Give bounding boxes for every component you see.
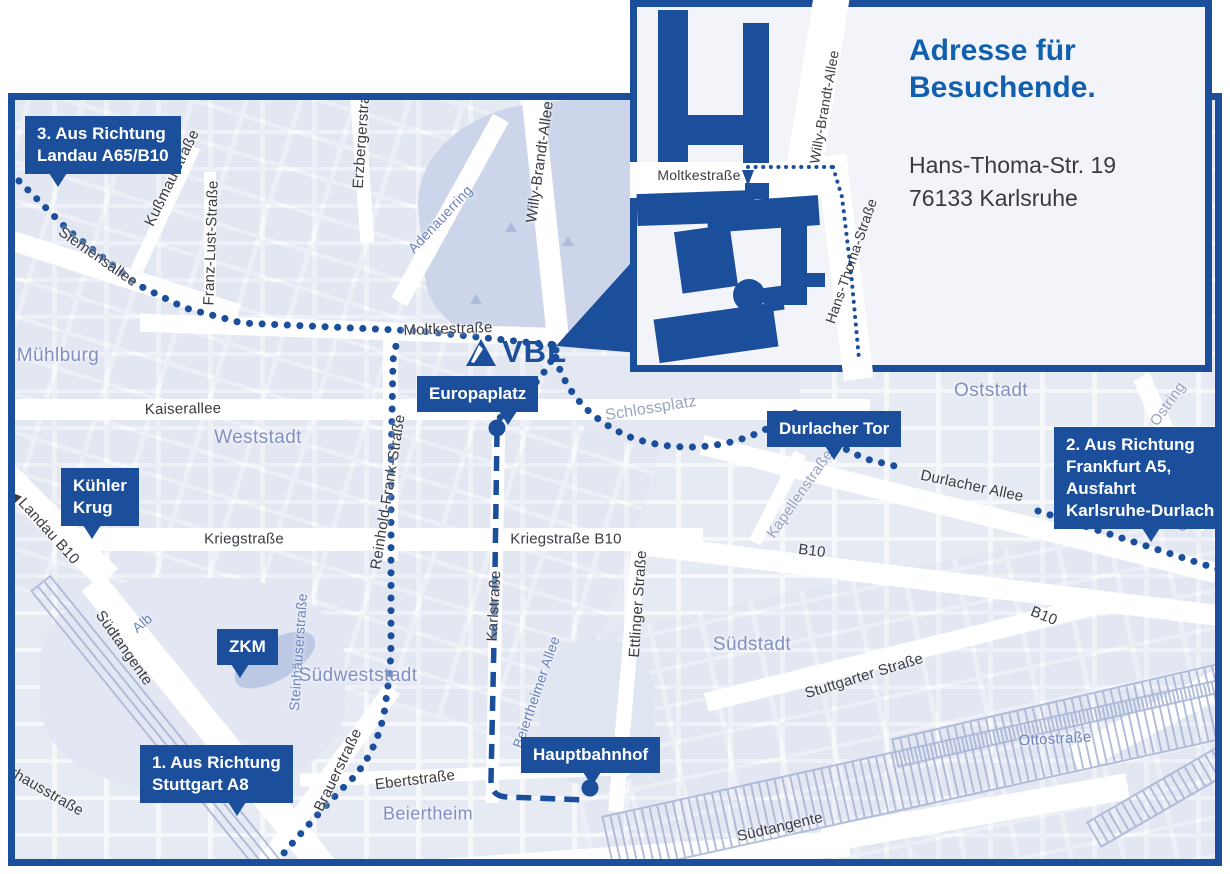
tree-icon [562, 236, 574, 246]
district-label-oststadt: Oststadt [954, 380, 1028, 402]
district-label-suedweststadt: Südweststadt [299, 665, 418, 687]
district-label-suedstadt: Südstadt [713, 634, 791, 656]
inset-street-label-moltkestrasse: Moltkestraße [657, 167, 740, 183]
street-label-kriegstrasse: Kriegstraße [204, 531, 284, 548]
badge-kuehler-krug: Kühler Krug [61, 468, 139, 526]
badge-europaplatz: Europaplatz [417, 376, 538, 412]
street-label-kaiserallee: Kaiserallee [145, 400, 222, 418]
badge-route-1-stuttgart: 1. Aus Richtung Stuttgart A8 [140, 745, 293, 803]
vbl-logo: VBL [464, 334, 567, 370]
vbl-logo-text: VBL [502, 334, 567, 370]
inset-entrance-arrow-icon [742, 170, 754, 186]
street-label-b10-mid: B10 [797, 541, 826, 561]
inset-visitor-address: Hans-Thoma-Str. 19 76133 Karlsruhe [909, 149, 1116, 216]
badge-hauptbahnhof: Hauptbahnhof [521, 737, 660, 773]
district-label-weststadt: Weststadt [214, 427, 302, 449]
vbl-logo-triangle-icon [464, 337, 498, 367]
tree-icon [505, 222, 517, 232]
badge-durlacher-tor: Durlacher Tor [767, 411, 901, 447]
inset-address-panel: Moltkestraße Willy-Brandt-Allee Hans-Tho… [630, 0, 1212, 372]
badge-zkm: ZKM [217, 629, 278, 665]
inset-title: Adresse für Besuchende. [909, 33, 1096, 106]
tree-icon [470, 294, 482, 304]
badge-route-3-landau: 3. Aus Richtung Landau A65/B10 [25, 116, 181, 174]
street-label-kriegstrasse-b10: Kriegstraße B10 [510, 531, 621, 548]
vbl-directions-map: Siemensallee Kußmaulstraße Franz-Lust-St… [0, 0, 1230, 874]
badge-route-2-frankfurt: 2. Aus Richtung Frankfurt A5, Ausfahrt K… [1054, 427, 1226, 529]
district-label-beiertheim: Beiertheim [383, 804, 473, 825]
tree-icon [602, 300, 614, 310]
district-label-muehlburg: Mühlburg [17, 345, 99, 367]
